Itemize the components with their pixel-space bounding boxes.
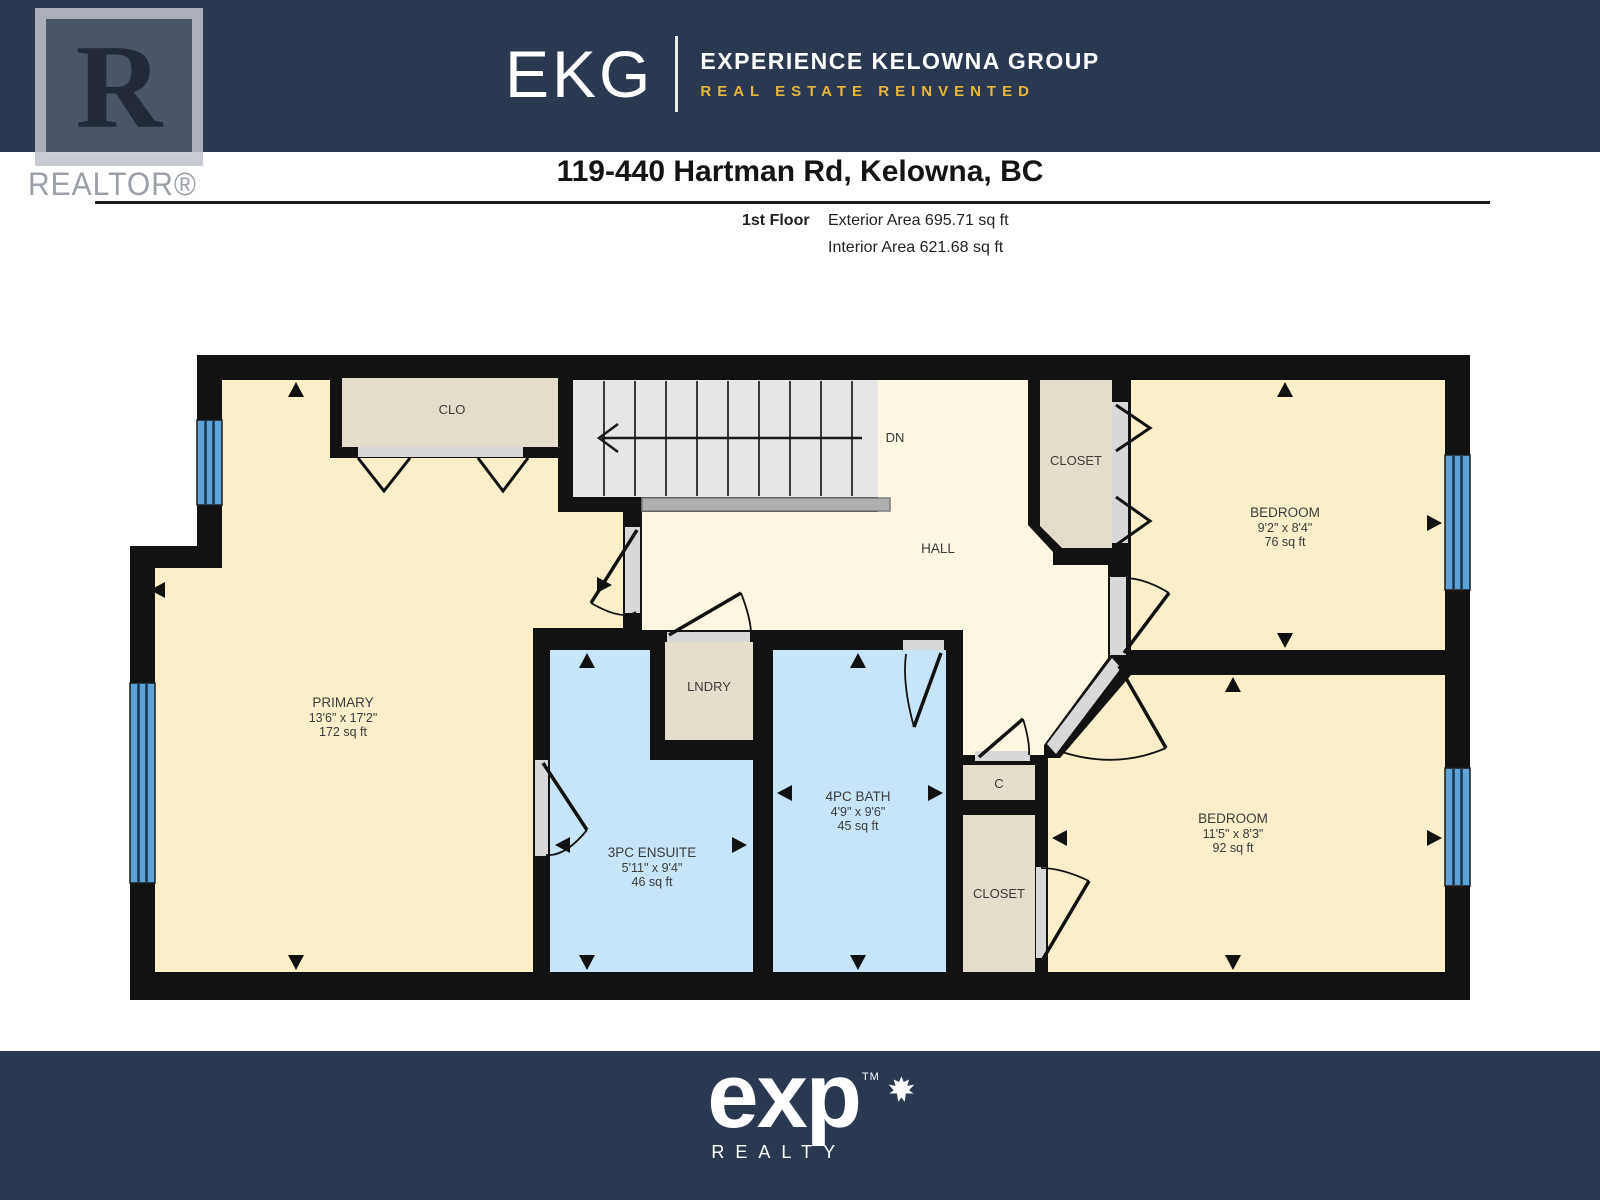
label-c: C (994, 776, 1003, 791)
label-lndry: LNDRY (687, 679, 731, 694)
svg-text:4'9" x 9'6": 4'9" x 9'6" (831, 805, 886, 819)
lndry-door-opening (667, 632, 750, 642)
svg-text:5'11" x 9'4": 5'11" x 9'4" (622, 861, 683, 875)
window-right-lower (1445, 768, 1470, 886)
closet-bottom-opening (1036, 867, 1046, 958)
svg-text:4PC BATH: 4PC BATH (825, 789, 890, 804)
svg-text:11'5" x 8'3": 11'5" x 8'3" (1203, 827, 1264, 841)
bedroom1-closet-opening (1112, 402, 1128, 543)
window-left-upper (197, 420, 222, 505)
floorplan-page: { "header": { "realtor": { "letter": "R"… (0, 0, 1600, 1200)
ensuite-door-opening (535, 760, 548, 856)
bath-door-opening (903, 640, 944, 650)
trademark-symbol: TM (862, 1071, 880, 1083)
footer-bar: exp TM REALTY (0, 1051, 1600, 1200)
stair-railing (642, 498, 890, 511)
svg-text:BEDROOM: BEDROOM (1250, 505, 1320, 520)
clo-track (358, 447, 523, 457)
svg-text:172 sq ft: 172 sq ft (319, 725, 367, 739)
svg-text:PRIMARY: PRIMARY (312, 695, 373, 710)
bedroom1-door-opening (1110, 577, 1126, 655)
svg-text:45 sq ft: 45 sq ft (838, 819, 880, 833)
svg-text:92 sq ft: 92 sq ft (1213, 841, 1255, 855)
exp-realty-label: REALTY (711, 1142, 917, 1163)
label-closet-top: CLOSET (1050, 453, 1102, 468)
svg-text:9'2" x 8'4": 9'2" x 8'4" (1258, 521, 1313, 535)
window-left-lower (130, 683, 155, 883)
exp-realty-logo: exp TM REALTY (707, 1061, 917, 1163)
label-clo: CLO (439, 402, 466, 417)
svg-text:76 sq ft: 76 sq ft (1265, 535, 1307, 549)
svg-text:46 sq ft: 46 sq ft (632, 875, 674, 889)
svg-text:13'6" x 17'2": 13'6" x 17'2" (309, 711, 378, 725)
label-dn: DN (886, 430, 905, 445)
window-right-upper (1445, 455, 1470, 590)
svg-text:BEDROOM: BEDROOM (1198, 811, 1268, 826)
label-closet-bottom: CLOSET (973, 886, 1025, 901)
label-hall: HALL (921, 541, 955, 556)
exp-wordmark: exp (707, 1061, 860, 1133)
maple-leaf-icon (886, 1075, 918, 1107)
svg-text:3PC ENSUITE: 3PC ENSUITE (608, 845, 697, 860)
floor-plan: CLO DN HALL CLOSET LNDRY C CLOSET PRIMAR… (0, 0, 1600, 1200)
